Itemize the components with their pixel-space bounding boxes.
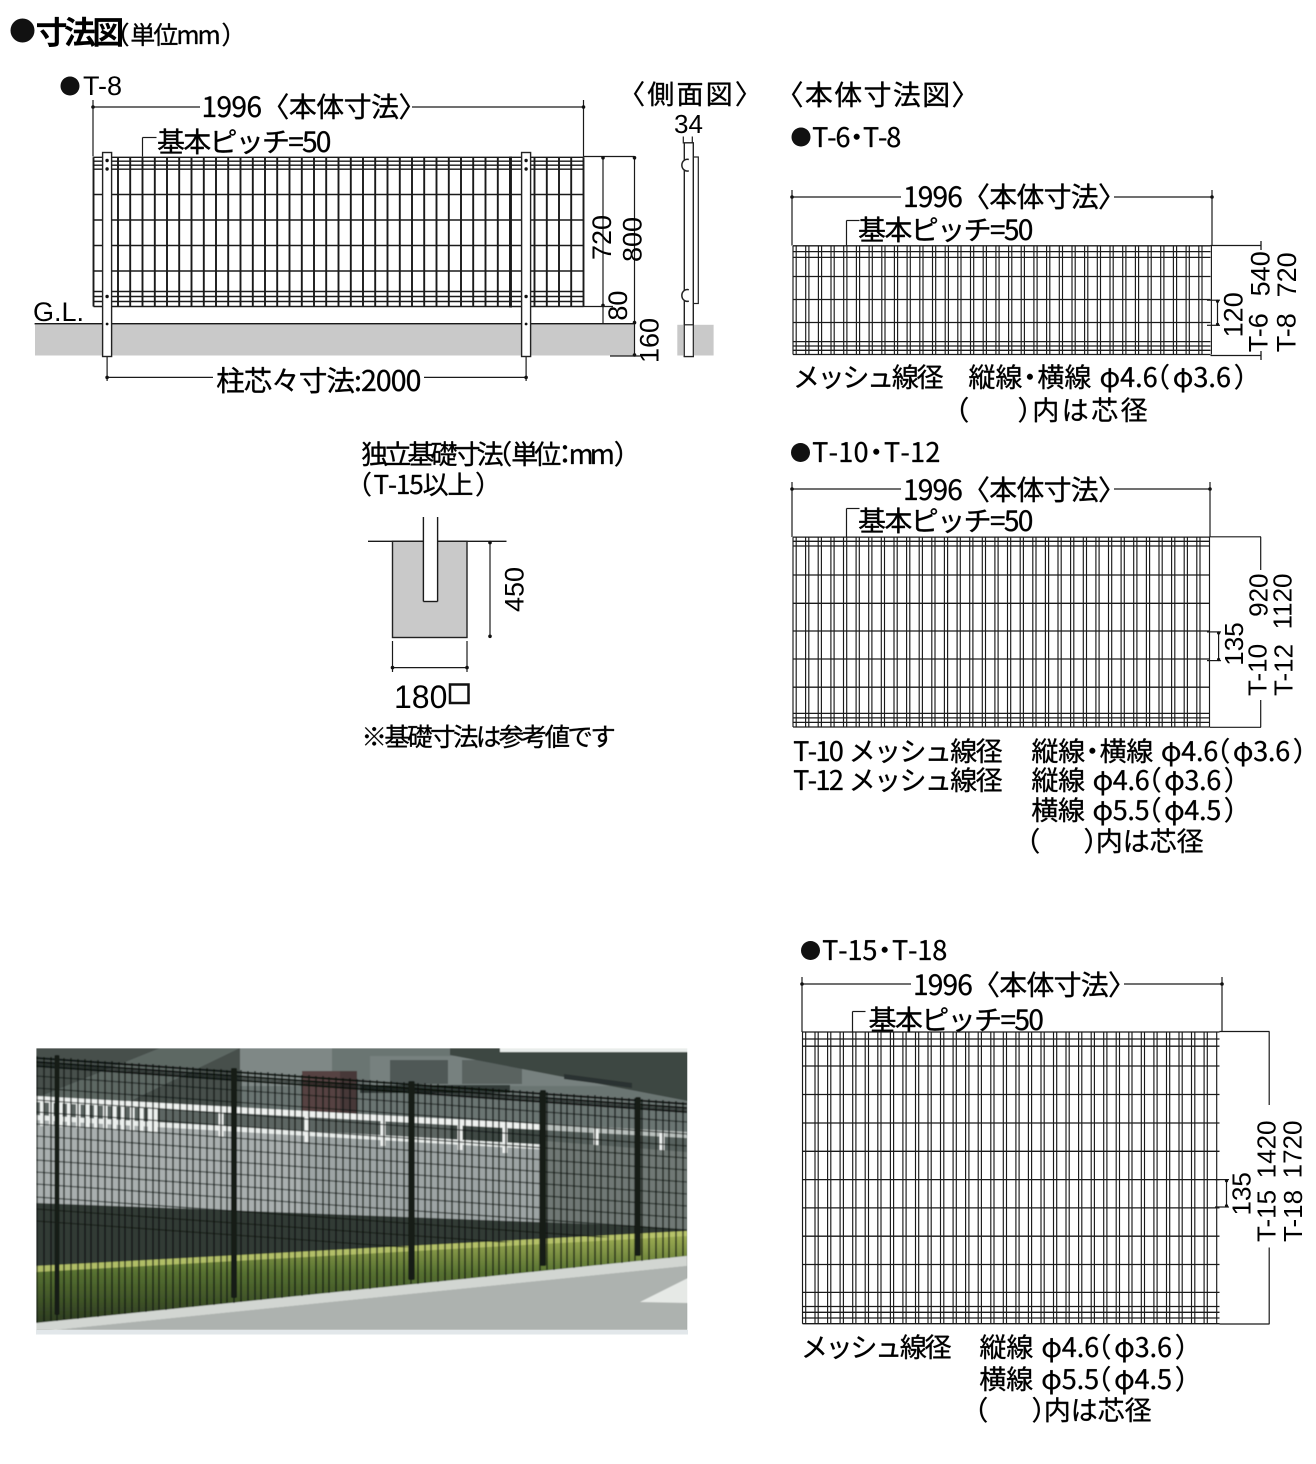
svg-text:T-12: T-12 [1268, 644, 1298, 696]
svg-text:T-8: T-8 [1272, 313, 1302, 352]
svg-text:G.L.: G.L. [33, 297, 84, 327]
svg-text:1720: 1720 [1277, 1121, 1307, 1179]
svg-text:720: 720 [587, 215, 617, 260]
svg-text:720: 720 [1272, 252, 1302, 297]
svg-text:34: 34 [674, 109, 703, 139]
svg-text:160: 160 [634, 318, 664, 363]
svg-text:135: 135 [1227, 1172, 1257, 1215]
svg-text:T-18: T-18 [1278, 1190, 1308, 1242]
svg-text:120: 120 [1219, 292, 1249, 337]
svg-text:450: 450 [500, 567, 530, 612]
svg-text:135: 135 [1219, 622, 1249, 665]
svg-text:T-8: T-8 [83, 71, 122, 101]
svg-text:800: 800 [618, 217, 648, 262]
svg-text:80: 80 [603, 291, 633, 321]
svg-text:180: 180 [394, 679, 447, 715]
svg-text:1120: 1120 [1268, 574, 1298, 630]
